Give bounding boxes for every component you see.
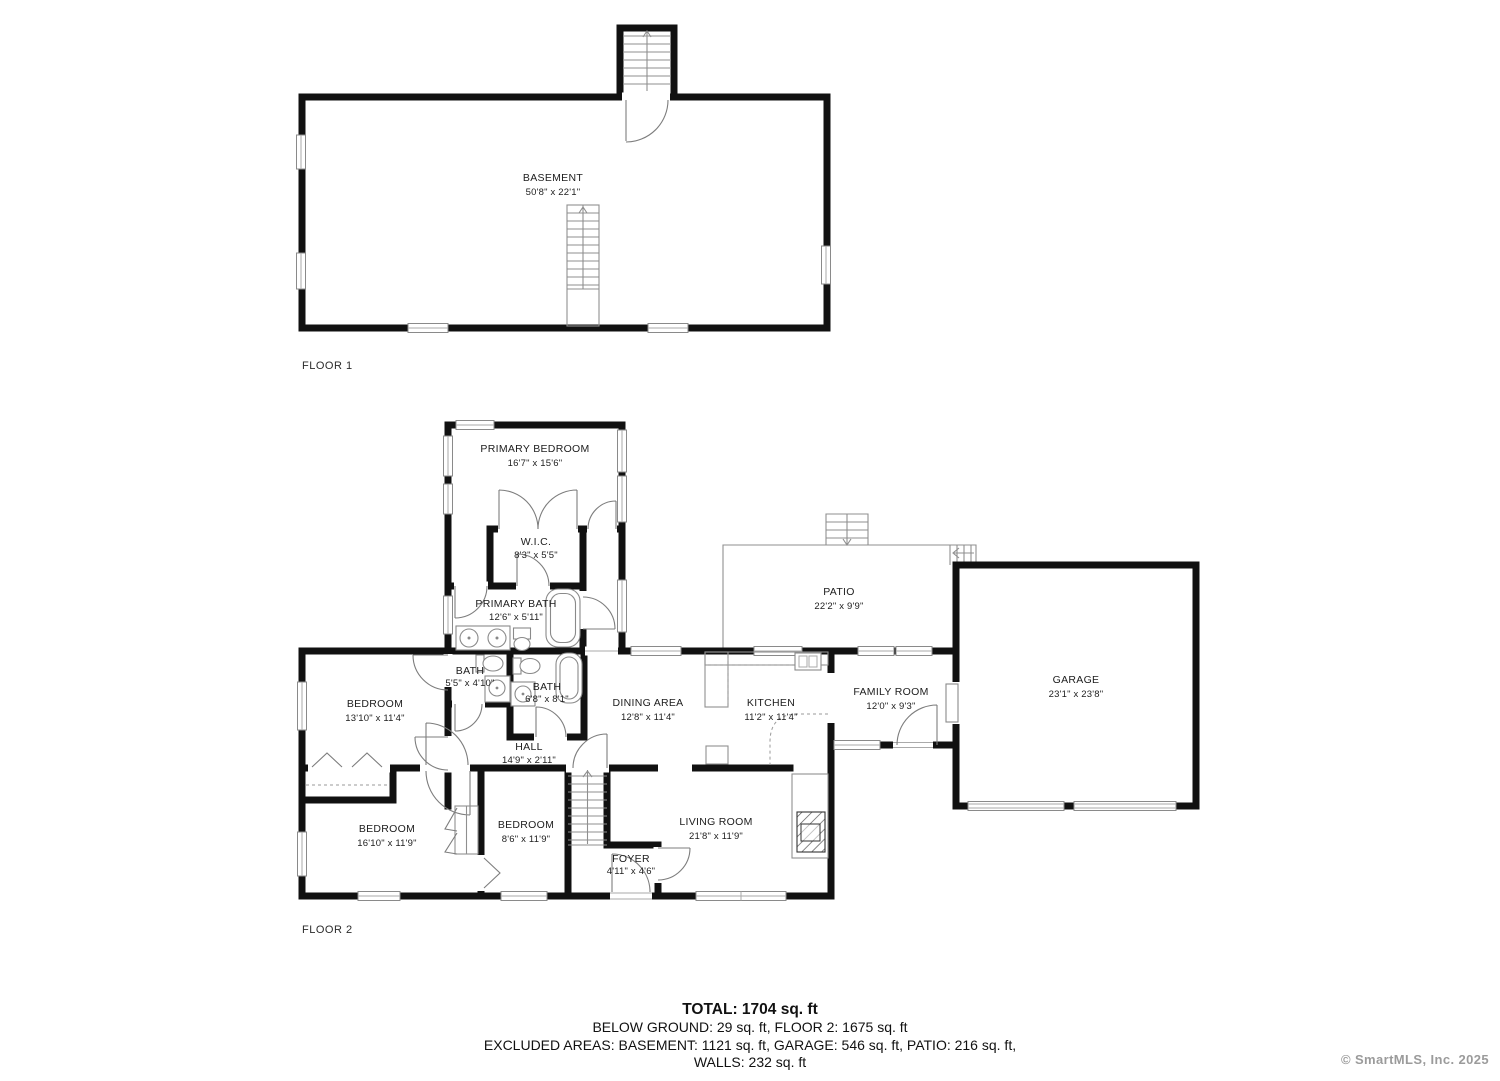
room-dims-bedroom-3: 8'6" x 11'9" [502,834,551,845]
room-label-wic: W.I.C. [521,536,551,548]
room-label-bath-2: BATH [533,681,561,693]
room-dims-bedroom-1: 13'10" x 11'4" [345,713,404,724]
smartmls-watermark: © SmartMLS, Inc. 2025 [1341,1052,1489,1067]
room-label-basement: BASEMENT [523,172,583,184]
room-dims-kitchen: 11'2" x 11'4" [744,712,797,723]
room-dims-family-room: 12'0" x 9'3" [866,701,915,712]
room-label-foyer: FOYER [612,853,650,865]
room-dims-living-room: 21'8" x 11'9" [689,831,743,842]
room-label-primary-bedroom: PRIMARY BEDROOM [480,443,589,455]
summary-line1: BELOW GROUND: 29 sq. ft, FLOOR 2: 1675 s… [592,1019,907,1035]
room-label-dining-area: DINING AREA [613,697,684,709]
floor-plan-canvas: BASEMENT 50'8" x 22'1" FLOOR 1 [0,0,1500,1081]
basement-door-opening [622,93,670,102]
room-dims-wic: 8'3" x 5'5" [514,550,558,561]
room-label-family-room: FAMILY ROOM [853,686,928,698]
room-dims-foyer: 4'11" x 4'6" [607,866,656,877]
room-dims-bath-2: 6'8" x 8'1" [525,694,569,705]
basement-entry-stairs-icon [623,31,671,91]
summary-line2: EXCLUDED AREAS: BASEMENT: 1121 sq. ft, G… [484,1037,1016,1053]
room-label-bedroom-3: BEDROOM [498,819,554,831]
room-label-bedroom-2: BEDROOM [359,823,415,835]
area-summary: TOTAL: 1704 sq. ft BELOW GROUND: 29 sq. … [484,1001,1016,1070]
basement-door-arc [626,100,668,142]
floor2-stairs-icon [568,770,607,845]
basement-windows [297,135,831,333]
room-dims-dining-area: 12'8" x 11'4" [621,712,675,723]
room-label-bedroom-1: BEDROOM [347,698,403,710]
floor1-caption: FLOOR 1 [302,360,353,372]
patio-outline [723,514,976,651]
room-dims-garage: 23'1" x 23'8" [1049,689,1104,700]
room-label-hall: HALL [515,741,542,753]
floor-plan-page: BASEMENT 50'8" x 22'1" FLOOR 1 [0,0,1500,1081]
room-dims-basement: 50'8" x 22'1" [526,187,581,198]
summary-line3: WALLS: 232 sq. ft [694,1054,806,1070]
floor2-windows [298,421,1177,901]
room-label-bath-1: BATH [456,665,484,677]
room-label-garage: GARAGE [1053,674,1100,686]
floor2-room-labels: PRIMARY BEDROOM 16'7" x 15'6" W.I.C. 8'3… [345,443,1103,877]
floor1-plan: BASEMENT 50'8" x 22'1" FLOOR 1 [297,28,831,372]
room-dims-patio: 22'2" x 9'9" [814,601,863,612]
room-label-living-room: LIVING ROOM [679,816,752,828]
room-dims-bedroom-2: 16'10" x 11'9" [357,838,416,849]
floor2-caption: FLOOR 2 [302,924,353,936]
room-label-patio: PATIO [823,586,854,598]
room-label-kitchen: KITCHEN [747,697,795,709]
room-dims-hall: 14'9" x 2'11" [502,755,556,766]
basement-stairs-icon [567,205,599,326]
room-dims-bath-1: 5'5" x 4'10" [445,678,494,689]
floor2-plan: PRIMARY BEDROOM 16'7" x 15'6" W.I.C. 8'3… [298,421,1197,937]
room-dims-primary-bath: 12'6" x 5'11" [489,612,543,623]
summary-total: TOTAL: 1704 sq. ft [682,1001,818,1018]
room-dims-primary-bedroom: 16'7" x 15'6" [508,458,563,469]
room-label-primary-bath: PRIMARY BATH [475,598,556,610]
